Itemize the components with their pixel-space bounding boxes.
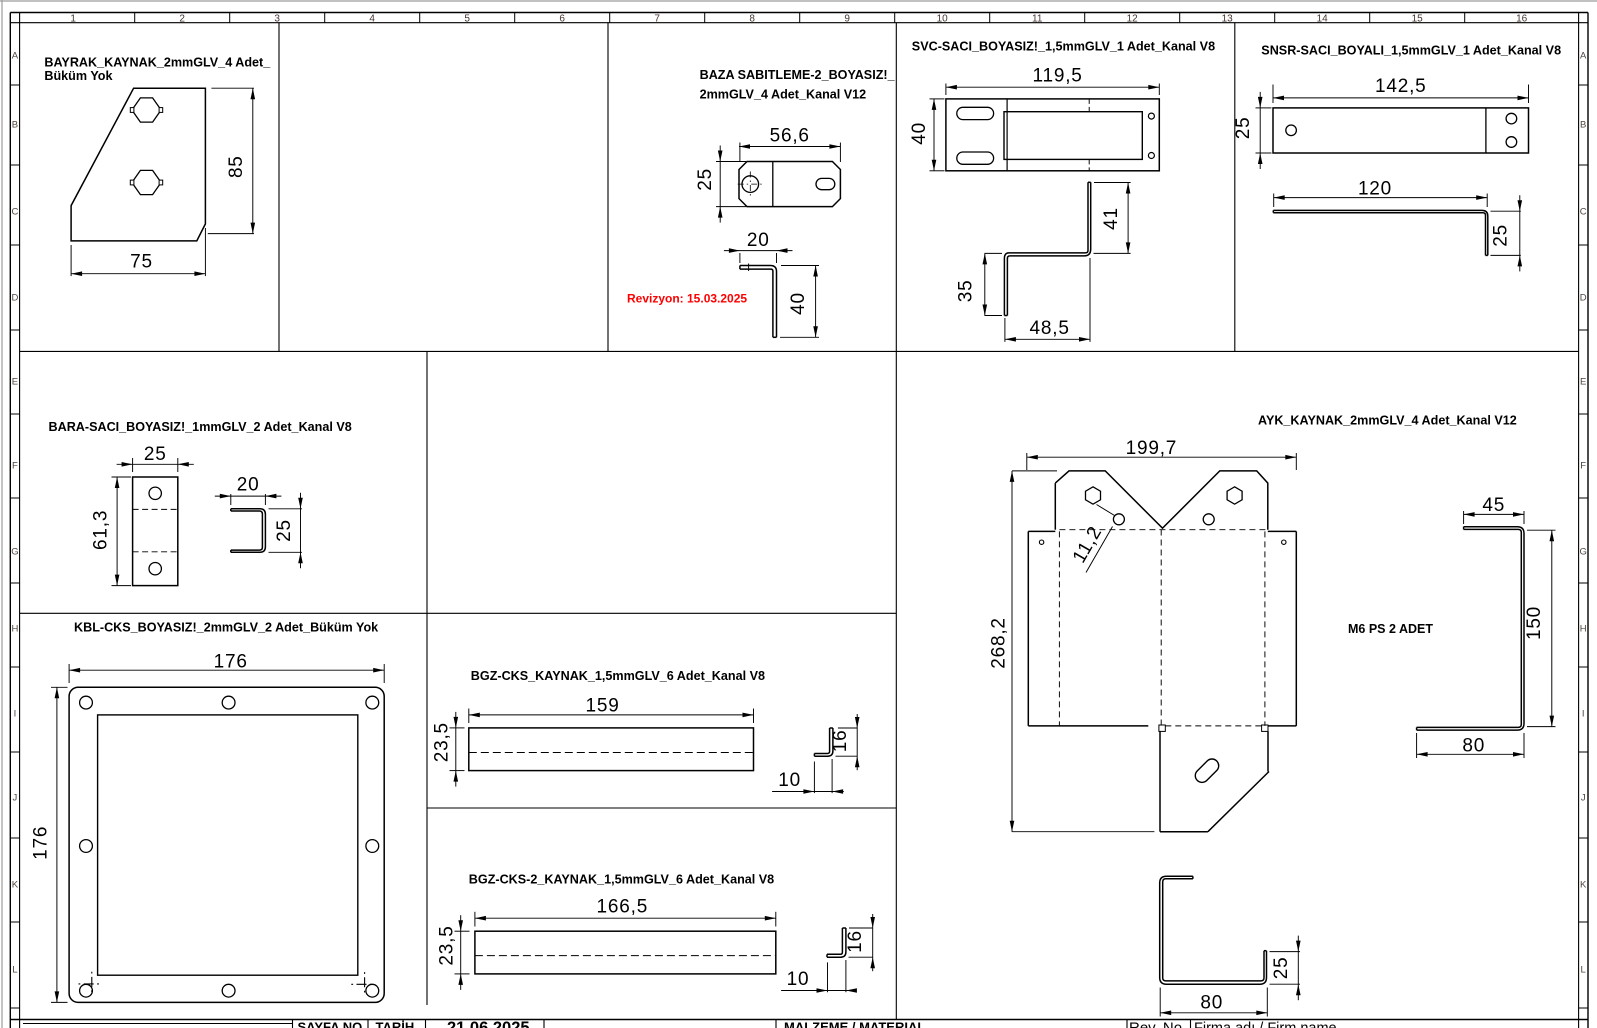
svg-text:25: 25 — [274, 519, 295, 542]
svg-text:12: 12 — [1127, 13, 1139, 24]
svg-text:40: 40 — [788, 292, 809, 315]
svg-text:40: 40 — [909, 122, 930, 145]
svg-text:45: 45 — [1482, 495, 1505, 516]
svg-text:142,5: 142,5 — [1375, 76, 1427, 97]
svg-text:56,6: 56,6 — [770, 126, 810, 147]
svg-text:H: H — [11, 623, 18, 634]
svg-text:SNSR-SACI_BOYALI_1,5mmGLV_1 Ad: SNSR-SACI_BOYALI_1,5mmGLV_1 Adet_Kanal V… — [1261, 44, 1561, 58]
svg-text:D: D — [11, 292, 18, 303]
svg-text:C: C — [1580, 206, 1587, 217]
svg-text:Firma adı / Firm name: Firma adı / Firm name — [1194, 1021, 1337, 1028]
svg-text:KBL-CKS_BOYASIZ!_2mmGLV_2 Adet: KBL-CKS_BOYASIZ!_2mmGLV_2 Adet_Büküm Yok — [74, 620, 379, 634]
svg-text:166,5: 166,5 — [597, 897, 649, 918]
svg-text:Büküm Yok: Büküm Yok — [44, 69, 113, 83]
svg-text:G: G — [1580, 546, 1587, 557]
svg-text:I: I — [14, 708, 17, 719]
svg-text:25: 25 — [1271, 957, 1292, 980]
svg-text:150: 150 — [1524, 606, 1545, 640]
svg-text:BARA-SACI_BOYASIZ!_1mmGLV_2 Ad: BARA-SACI_BOYASIZ!_1mmGLV_2 Adet_Kanal V… — [49, 420, 352, 434]
svg-text:BAZA SABITLEME-2_BOYASIZ!_: BAZA SABITLEME-2_BOYASIZ!_ — [700, 68, 896, 82]
svg-text:1: 1 — [70, 13, 76, 24]
svg-text:61,3: 61,3 — [90, 510, 111, 550]
svg-text:13: 13 — [1222, 13, 1234, 24]
svg-text:M6 PS 2 ADET: M6 PS 2 ADET — [1348, 622, 1433, 636]
svg-text:23,5: 23,5 — [431, 722, 452, 762]
svg-text:A: A — [1580, 50, 1587, 61]
svg-text:15: 15 — [1412, 13, 1424, 24]
svg-text:BGZ-CKS-2_KAYNAK_1,5mmGLV_6 Ad: BGZ-CKS-2_KAYNAK_1,5mmGLV_6 Adet_Kanal V… — [469, 872, 774, 886]
svg-text:25: 25 — [144, 444, 167, 465]
svg-text:23,5: 23,5 — [437, 925, 458, 965]
svg-text:2: 2 — [179, 13, 185, 24]
svg-text:H: H — [1580, 623, 1587, 634]
svg-text:L: L — [12, 964, 17, 975]
svg-text:16: 16 — [830, 730, 851, 753]
svg-text:2mmGLV_4 Adet_Kanal V12: 2mmGLV_4 Adet_Kanal V12 — [700, 88, 867, 102]
svg-text:MALZEME / MATERIAL: MALZEME / MATERIAL — [784, 1019, 925, 1028]
svg-text:85: 85 — [226, 155, 247, 178]
svg-text:K: K — [12, 879, 19, 890]
svg-text:Rev. No: Rev. No — [1129, 1020, 1182, 1028]
svg-text:20: 20 — [237, 475, 260, 496]
svg-text:A: A — [12, 50, 19, 61]
svg-text:176: 176 — [214, 651, 248, 672]
svg-text:8: 8 — [749, 13, 755, 24]
svg-text:E: E — [12, 376, 18, 387]
svg-text:B: B — [12, 119, 18, 130]
svg-text:25: 25 — [1490, 224, 1511, 247]
svg-text:5: 5 — [464, 13, 470, 24]
svg-text:BAYRAK_KAYNAK_2mmGLV_4 Adet_: BAYRAK_KAYNAK_2mmGLV_4 Adet_ — [44, 56, 271, 70]
svg-text:25: 25 — [1233, 117, 1254, 140]
svg-text:7: 7 — [654, 13, 660, 24]
svg-text:G: G — [11, 546, 18, 557]
svg-text:268,2: 268,2 — [989, 617, 1010, 669]
svg-text:199,7: 199,7 — [1126, 438, 1178, 459]
svg-text:35: 35 — [956, 280, 977, 303]
svg-text:L: L — [1581, 964, 1586, 975]
svg-text:9: 9 — [844, 13, 850, 24]
svg-text:75: 75 — [130, 252, 153, 273]
svg-text:TARİH: TARİH — [376, 1019, 415, 1028]
svg-text:J: J — [13, 792, 18, 803]
svg-text:20: 20 — [747, 230, 770, 251]
svg-text:6: 6 — [559, 13, 565, 24]
svg-text:159: 159 — [586, 696, 620, 717]
svg-text:F: F — [12, 460, 18, 471]
svg-text:25: 25 — [695, 168, 716, 191]
svg-text:10: 10 — [778, 770, 801, 791]
svg-text:120: 120 — [1358, 178, 1392, 199]
svg-text:16: 16 — [1516, 13, 1528, 24]
svg-text:AYK_KAYNAK_2mmGLV_4 Adet_Kanal: AYK_KAYNAK_2mmGLV_4 Adet_Kanal V12 — [1258, 414, 1517, 428]
svg-text:K: K — [1580, 879, 1587, 890]
svg-text:10: 10 — [787, 969, 810, 990]
svg-text:3: 3 — [274, 13, 280, 24]
svg-text:41: 41 — [1101, 207, 1122, 230]
svg-text:14: 14 — [1317, 13, 1329, 24]
svg-text:16: 16 — [845, 930, 866, 953]
svg-text:4: 4 — [369, 13, 375, 24]
svg-text:21.06.2025: 21.06.2025 — [447, 1019, 530, 1028]
svg-text:D: D — [1580, 292, 1587, 303]
svg-text:Revizyon: 15.03.2025: Revizyon: 15.03.2025 — [627, 292, 747, 306]
svg-text:SAYFA NO: SAYFA NO — [298, 1019, 363, 1028]
svg-text:119,5: 119,5 — [1033, 65, 1083, 86]
svg-text:I: I — [1582, 708, 1585, 719]
svg-text:BGZ-CKS_KAYNAK_1,5mmGLV_6 Adet: BGZ-CKS_KAYNAK_1,5mmGLV_6 Adet_Kanal V8 — [471, 669, 765, 683]
svg-text:10: 10 — [937, 13, 949, 24]
svg-text:C: C — [11, 206, 18, 217]
svg-text:E: E — [1580, 376, 1586, 387]
svg-text:80: 80 — [1200, 993, 1223, 1014]
svg-text:11: 11 — [1032, 13, 1043, 24]
svg-text:B: B — [1580, 119, 1586, 130]
svg-text:176: 176 — [30, 826, 51, 860]
svg-text:48,5: 48,5 — [1030, 318, 1070, 339]
svg-text:80: 80 — [1462, 735, 1485, 756]
svg-text:F: F — [1580, 460, 1586, 471]
svg-text:J: J — [1581, 792, 1586, 803]
svg-text:SVC-SACI_BOYASIZ!_1,5mmGLV_1 A: SVC-SACI_BOYASIZ!_1,5mmGLV_1 Adet_Kanal … — [912, 39, 1215, 53]
